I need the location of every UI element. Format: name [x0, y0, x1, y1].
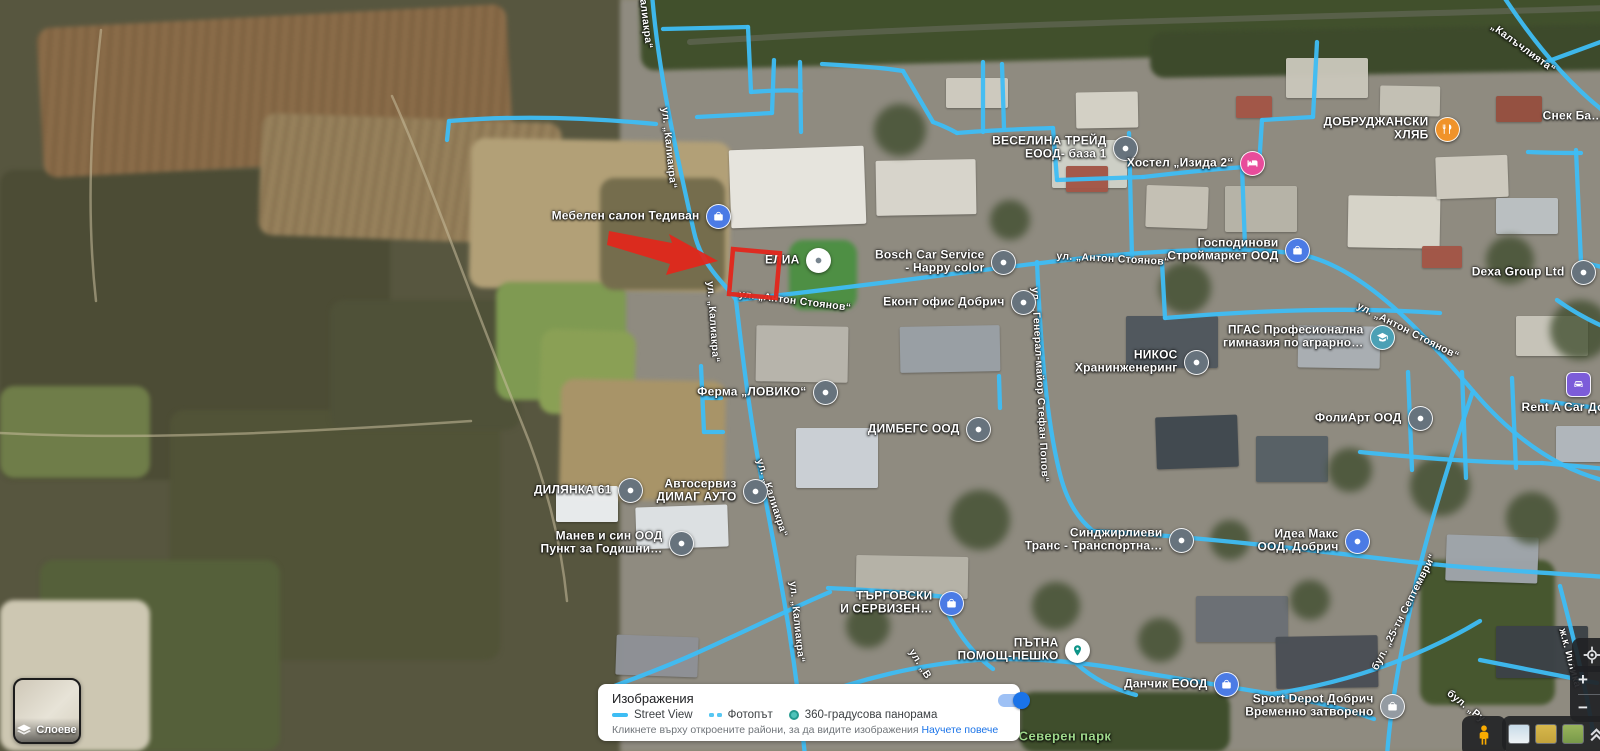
- poi-marker[interactable]: Bosch Car Service- Happy color: [991, 250, 1016, 275]
- dot-gray-icon: [966, 417, 991, 442]
- poi-label: Хостел „Изида 2“: [1127, 156, 1234, 169]
- poi-label: ДИЛЯНКА 61: [534, 483, 612, 496]
- street-view-line-swatch: [612, 713, 628, 717]
- poi-marker[interactable]: ДИМБЕГС ООД: [966, 417, 991, 442]
- poi-marker[interactable]: Идеа МаксООД, Добрич: [1345, 529, 1370, 554]
- poi-marker[interactable]: ФолиАрт ООД: [1408, 406, 1433, 431]
- dot-gray-icon: [1184, 350, 1209, 375]
- imagery-toggle[interactable]: [998, 694, 1028, 707]
- dot-gray-icon: [1408, 406, 1433, 431]
- poi-label: ПЪТНАПОМОЩ-ПЕШКО: [957, 637, 1058, 664]
- poi-marker[interactable]: Rent A Car Добрич: [1566, 372, 1591, 397]
- poi-marker[interactable]: Манев и син ООДПункт за Годишни…: [669, 531, 694, 556]
- learn-more-link[interactable]: Научете повече: [921, 724, 998, 736]
- poi-label: Ферма „ЛОВИКО“: [697, 385, 806, 398]
- poi-label: ВЕСЕЛИНА ТРЕЙДЕООД- база 1: [992, 135, 1106, 162]
- dot-gray-icon: [618, 478, 643, 503]
- dot-gray-icon: [743, 479, 768, 504]
- zoom-in-button[interactable]: +: [1570, 666, 1600, 694]
- photo-path-dash-swatch: [709, 713, 722, 717]
- dot-gray-icon: [1571, 260, 1596, 285]
- dot-gray-icon: [669, 531, 694, 556]
- pegman-icon: [1471, 723, 1497, 749]
- my-location-icon: [1582, 645, 1600, 665]
- poi-label: СинджирлиевиТранс - Транспортна…: [1025, 527, 1163, 554]
- poi-label: Еконт офис Добрич: [883, 295, 1004, 308]
- car-purple-icon: [1566, 372, 1591, 397]
- bed-pink-icon: [1240, 151, 1265, 176]
- poi-label: ПГАС Професионалнагимназия по аграрно…: [1223, 324, 1364, 351]
- poi-label: Данчик ЕООД: [1124, 677, 1207, 690]
- poi-label: Снек Ба…: [1543, 109, 1600, 122]
- chevron-up-icon[interactable]: [1589, 726, 1600, 743]
- poi-marker[interactable]: Ферма „ЛОВИКО“: [813, 380, 838, 405]
- map-style-thumbnails: [1502, 716, 1600, 751]
- bag-gray-icon: [1380, 694, 1405, 719]
- poi-marker[interactable]: ТЪРГОВСКИИ СЕРВИЗЕН…: [939, 591, 964, 616]
- imagery-panel-title: Изображения: [612, 691, 998, 706]
- poi-marker[interactable]: ДИЛЯНКА 61: [618, 478, 643, 503]
- poi-label: НИКОСХранинженеринг: [1075, 349, 1178, 376]
- bag-blue-icon: [1285, 238, 1310, 263]
- legend-street-view: Street View: [612, 709, 693, 721]
- dot-blue-icon: [1345, 529, 1370, 554]
- poi-label: Sport Depot ДобричВременно затворено: [1245, 693, 1373, 720]
- poi-marker[interactable]: ПГАС Професионалнагимназия по аграрно…: [1370, 325, 1395, 350]
- poi-label: Мебелен салон Тедиван: [552, 209, 700, 222]
- legend-photo-path: Фотопът: [709, 709, 773, 721]
- poi-label: АвтосервизДИМАГ АУТО: [656, 478, 736, 505]
- poi-marker[interactable]: СинджирлиевиТранс - Транспортна…: [1169, 528, 1194, 553]
- poi-label: ДИМБЕГС ООД: [868, 422, 960, 435]
- layers-button[interactable]: Слоеве: [13, 678, 81, 744]
- school-teal-icon: [1370, 325, 1395, 350]
- poi-marker[interactable]: ЕЛИА: [806, 248, 831, 273]
- map-style-thumbnail[interactable]: [1508, 724, 1530, 744]
- imagery-panel-body: Изображения Street View Фотопът 360-град…: [598, 684, 998, 741]
- toggle-knob: [1013, 692, 1030, 709]
- poi-marker[interactable]: Dexa Group Ltd: [1571, 260, 1596, 285]
- legend-label: Фотопът: [728, 709, 773, 721]
- imagery-legend: Street View Фотопът 360-градусова панора…: [612, 709, 998, 721]
- legend-label: 360-градусова панорама: [805, 709, 938, 721]
- poi-label: Rent A Car Добрич: [1522, 401, 1600, 414]
- panorama-circle-swatch: [789, 710, 799, 720]
- poi-label: Bosch Car Service- Happy color: [875, 249, 984, 276]
- map-style-thumbnail[interactable]: [1535, 724, 1557, 744]
- poi-layer: Мебелен салон ТедиванЕЛИАВЕСЕЛИНА ТРЕЙДЕ…: [0, 0, 1600, 751]
- poi-label: ДОБРУДЖАНСКИХЛЯБ: [1324, 116, 1429, 143]
- bag-blue-icon: [706, 204, 731, 229]
- dot-gray-icon: [1169, 528, 1194, 553]
- poi-marker[interactable]: ГосподиновиСтроймаркет ООД: [1285, 238, 1310, 263]
- dot-gray-icon: [813, 380, 838, 405]
- imagery-panel: Изображения Street View Фотопът 360-град…: [598, 684, 1020, 741]
- poi-label: Идеа МаксООД, Добрич: [1257, 528, 1338, 555]
- poi-marker[interactable]: ПЪТНАПОМОЩ-ПЕШКО: [1065, 638, 1090, 663]
- map-viewport[interactable]: алиакра“ул. „Калиакра“ул. „Калиакра“ул. …: [0, 0, 1600, 751]
- layers-button-label-row: Слоеве: [15, 718, 79, 742]
- bag-blue-icon: [939, 591, 964, 616]
- layers-icon: [17, 724, 31, 736]
- imagery-caption: Кликнете върху откроените райони, за да …: [612, 724, 998, 736]
- pin-teal-icon: [1065, 638, 1090, 663]
- imagery-caption-text: Кликнете върху откроените райони, за да …: [612, 724, 919, 736]
- poi-label: ТЪРГОВСКИИ СЕРВИЗЕН…: [840, 590, 932, 617]
- dot-gray-icon: [1011, 290, 1036, 315]
- poi-marker[interactable]: Еконт офис Добрич: [1011, 290, 1036, 315]
- poi-label: ЕЛИА: [765, 253, 800, 266]
- bag-blue-icon: [1214, 672, 1239, 697]
- zoom-control: + −: [1570, 666, 1600, 722]
- poi-label: Dexa Group Ltd: [1472, 265, 1565, 278]
- food-orange-icon: [1435, 117, 1460, 142]
- layers-label: Слоеве: [36, 724, 76, 736]
- poi-marker[interactable]: НИКОСХранинженеринг: [1184, 350, 1209, 375]
- legend-360-panorama: 360-градусова панорама: [789, 709, 938, 721]
- poi-marker[interactable]: ДОБРУДЖАНСКИХЛЯБ: [1435, 117, 1460, 142]
- poi-marker[interactable]: Мебелен салон Тедиван: [706, 204, 731, 229]
- dot-gray-icon: [991, 250, 1016, 275]
- pegman-container[interactable]: [1462, 716, 1506, 751]
- poi-marker[interactable]: Хостел „Изида 2“: [1240, 151, 1265, 176]
- poi-label: ГосподиновиСтроймаркет ООД: [1167, 237, 1278, 264]
- poi-label: ФолиАрт ООД: [1315, 411, 1402, 424]
- poi-marker[interactable]: Sport Depot ДобричВременно затворено: [1380, 694, 1405, 719]
- poi-marker[interactable]: Данчик ЕООД: [1214, 672, 1239, 697]
- poi-label: Манев и син ООДПункт за Годишни…: [541, 530, 663, 557]
- dot-white-icon: [806, 248, 831, 273]
- poi-marker[interactable]: АвтосервизДИМАГ АУТО: [743, 479, 768, 504]
- map-style-thumbnail[interactable]: [1562, 724, 1584, 744]
- imagery-toggle-section: [998, 684, 1028, 741]
- legend-label: Street View: [634, 709, 693, 721]
